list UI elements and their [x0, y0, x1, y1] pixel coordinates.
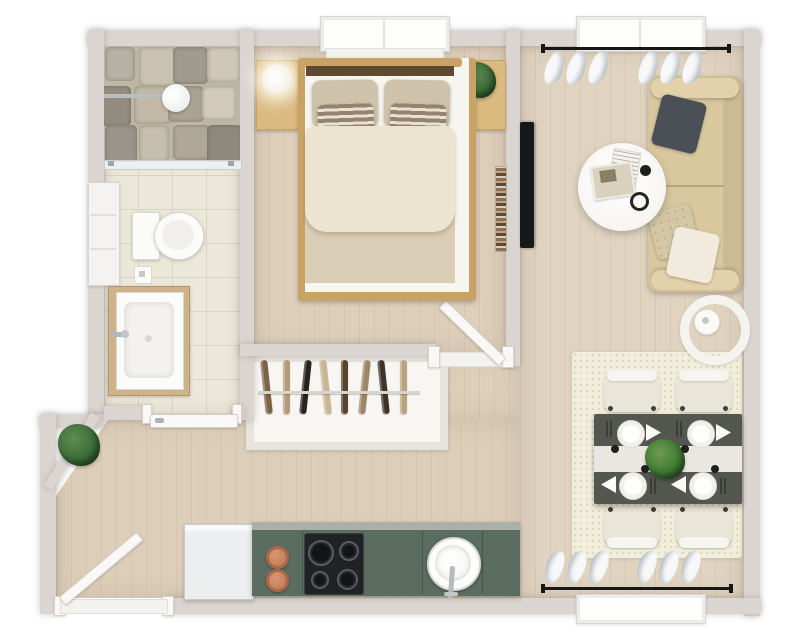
- black-cup: [611, 445, 619, 453]
- curtain-pleat: [658, 48, 684, 86]
- curtain-group-north-left: [546, 50, 626, 90]
- black-cup: [641, 465, 649, 473]
- clothes-hanger: [341, 360, 348, 414]
- chair-leg: [651, 507, 656, 512]
- place-setting-plate: [689, 472, 717, 500]
- table-ring-object: [630, 192, 649, 211]
- vanity-faucet-base: [121, 330, 129, 338]
- wall-west-entry: [40, 414, 56, 614]
- burner: [308, 540, 334, 566]
- shower-stone: [173, 47, 208, 84]
- clothes-hanger: [400, 360, 407, 414]
- curtain-pleat: [564, 548, 590, 586]
- curtain-pleat: [636, 48, 662, 86]
- sofa-backrest: [723, 96, 740, 272]
- curtain-pleat: [586, 48, 612, 86]
- chair-backrest: [679, 370, 729, 381]
- wall-bedroom-living: [506, 30, 520, 366]
- shower-stone: [207, 47, 240, 82]
- cutlery: [680, 421, 682, 437]
- shower-glass-divider: [104, 160, 242, 170]
- shower-stone: [105, 125, 137, 162]
- curtain-group-south-left: [546, 550, 626, 590]
- curtain-pleat: [678, 548, 704, 586]
- cabinet-divider: [302, 531, 303, 594]
- cutlery: [676, 421, 678, 437]
- burner: [339, 541, 359, 561]
- bed-headboard: [306, 66, 454, 76]
- dining-chair: [604, 506, 660, 546]
- shower-arm: [104, 94, 166, 98]
- cabinet-divider: [482, 531, 483, 594]
- chair-backrest: [679, 537, 729, 548]
- magazine-photo: [599, 169, 617, 183]
- cabinet-shelf-line: [90, 214, 116, 216]
- chair-leg: [608, 406, 613, 411]
- burner: [311, 571, 329, 589]
- closet-rail: [258, 391, 420, 394]
- bathroom-door-handle: [155, 418, 164, 423]
- rod-cap: [541, 44, 545, 53]
- curtain-pleat: [586, 548, 612, 586]
- cutlery: [606, 421, 608, 437]
- dining-chair: [676, 372, 732, 412]
- chair-backrest: [607, 537, 657, 548]
- cutlery: [650, 478, 652, 494]
- chair-leg: [608, 507, 613, 512]
- cutlery: [724, 478, 726, 494]
- curtain-pleat: [656, 548, 682, 586]
- shower-door-handle: [228, 161, 234, 166]
- black-cup: [711, 465, 719, 473]
- bed-duvet-fold: [305, 126, 455, 232]
- dining-chair: [676, 506, 732, 546]
- bathroom-tall-cabinet: [88, 182, 120, 286]
- black-cup: [681, 445, 689, 453]
- table-lamp: [262, 64, 292, 94]
- cutlery: [654, 478, 656, 494]
- curtain-pleat: [542, 548, 568, 586]
- curtain-group-north-right: [640, 50, 720, 90]
- curtain-group-south-right: [638, 550, 718, 590]
- shower-stone: [202, 86, 236, 120]
- chair-leg: [651, 406, 656, 411]
- rod-cap: [729, 584, 733, 593]
- curtain-pleat: [564, 48, 590, 86]
- chair-leg: [723, 507, 728, 512]
- curtain-pleat: [634, 548, 660, 586]
- shower-stone: [139, 47, 176, 86]
- shower-door-handle: [108, 161, 114, 166]
- rod-cap: [727, 44, 731, 53]
- rod-cap: [541, 584, 545, 593]
- shower-stone: [105, 47, 135, 81]
- chair-backrest: [607, 370, 657, 381]
- wall-bedroom-south: [240, 344, 436, 356]
- place-setting-plate: [617, 420, 645, 448]
- shower-stone: [139, 125, 169, 162]
- place-setting-plate: [619, 472, 647, 500]
- chair-leg: [723, 406, 728, 411]
- toilet-seat: [162, 220, 194, 250]
- burner: [337, 569, 358, 590]
- basin-drain: [145, 335, 152, 342]
- clothes-hanger: [283, 360, 290, 414]
- shower-stone: [173, 125, 210, 160]
- cutlery: [720, 478, 722, 494]
- copper-pot: [266, 569, 289, 592]
- curtain-pleat: [542, 48, 568, 86]
- copper-pot: [266, 546, 289, 569]
- bedroom-door-jamb: [428, 346, 440, 368]
- bedroom-wall-bookshelf: [495, 166, 507, 252]
- shower-stone: [104, 86, 131, 126]
- coffee-cup: [640, 165, 651, 176]
- rain-shower-head: [162, 84, 190, 112]
- living-window-north-mullion: [639, 18, 641, 48]
- lamp-center-detail: [702, 317, 709, 324]
- table-centerpiece-plant: [645, 439, 685, 479]
- entry-plant: [58, 424, 100, 466]
- entry-door-sill: [60, 599, 168, 614]
- chair-leg: [680, 406, 685, 411]
- bedroom-window: [320, 16, 450, 52]
- cabinet-shelf-line: [90, 248, 116, 250]
- wall-bathroom-bedroom: [240, 30, 254, 420]
- refrigerator: [184, 524, 254, 600]
- shower-stone: [207, 125, 240, 162]
- wall-mounted-tv: [520, 122, 534, 248]
- chair-leg: [680, 507, 685, 512]
- fixture-detail: [139, 271, 145, 277]
- curtain-pleat: [680, 48, 706, 86]
- floor-plan-canvas: [0, 0, 800, 644]
- cabinet-divider: [422, 531, 423, 594]
- sink-faucet-base: [444, 592, 458, 596]
- dining-window-south: [576, 594, 706, 624]
- place-setting-plate: [687, 420, 715, 448]
- bedroom-window-mullion: [383, 18, 385, 48]
- dining-chair: [604, 372, 660, 412]
- cutlery: [610, 421, 612, 437]
